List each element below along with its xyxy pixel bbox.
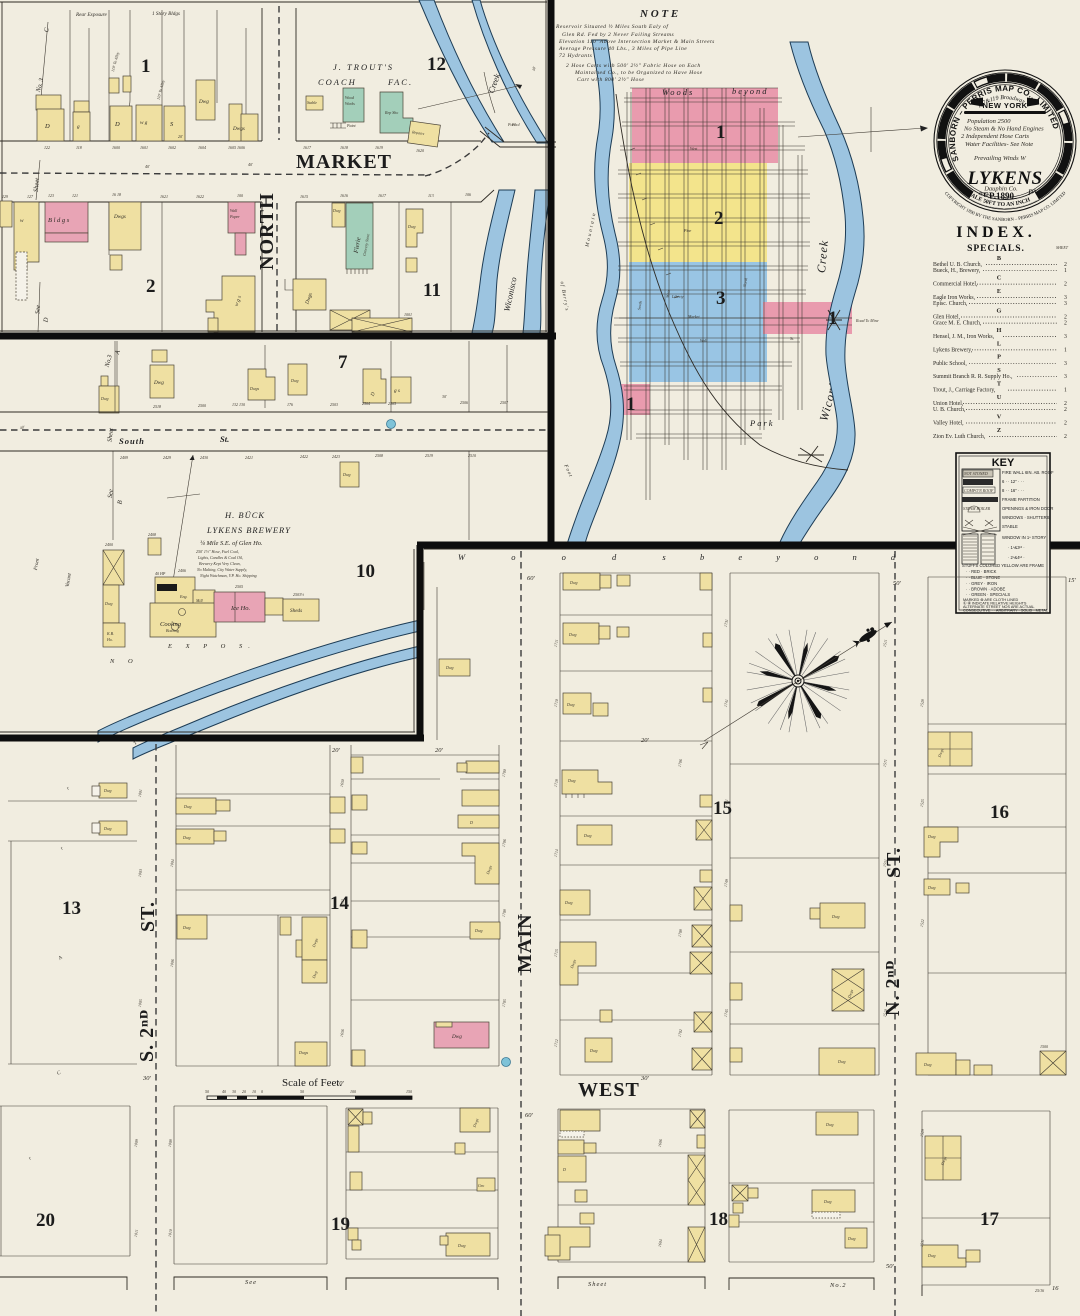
svg-text:B l d g s: B l d g s [48, 217, 70, 224]
svg-text:106: 106 [465, 192, 471, 197]
svg-text:S: S [997, 367, 1001, 374]
svg-text:10: 10 [252, 1089, 256, 1094]
svg-text:1: 1 [1064, 388, 1067, 394]
svg-text:NEW YORK: NEW YORK [982, 101, 1027, 110]
svg-text:St.: St. [220, 434, 229, 444]
svg-text:16 18: 16 18 [112, 192, 121, 197]
svg-text:Mill: Mill [195, 598, 204, 603]
svg-text:H: H [997, 327, 1002, 334]
svg-text:Dwg: Dwg [457, 1243, 466, 1248]
svg-text:Zion Ev. Luth Church,: Zion Ev. Luth Church, [933, 434, 986, 440]
svg-text:Grace M. E. Church,: Grace M. E. Church, [933, 321, 982, 327]
svg-text:2408: 2408 [148, 532, 156, 537]
svg-text:SPECIALS.: SPECIALS. [967, 244, 1025, 254]
svg-text:2: 2 [1064, 401, 1067, 407]
svg-text:2423: 2423 [332, 454, 340, 459]
svg-text:MARKET: MARKET [296, 151, 392, 173]
svg-text:COACH: COACH [318, 77, 357, 87]
svg-text:· · BLUE · STO: · · BLUE · STONE [966, 575, 1000, 580]
svg-text:N O T E: N O T E [639, 8, 678, 20]
svg-text:Dwg: Dwg [103, 826, 112, 831]
svg-text:Dwg: Dwg [564, 900, 573, 905]
svg-text:40 HP: 40 HP [155, 571, 166, 576]
svg-text:Cart with 800' 2½" Hose: Cart with 800' 2½" Hose [577, 76, 644, 83]
svg-text:Paper: Paper [229, 214, 240, 219]
svg-text:w: w [20, 218, 24, 224]
svg-text:1: 1 [716, 122, 726, 143]
svg-text:Stable: Stable [307, 100, 317, 105]
svg-text:30': 30' [442, 394, 447, 399]
svg-text:WINDOWS · SHUTTERS: WINDOWS · SHUTTERS [1002, 515, 1050, 520]
svg-text:11: 11 [423, 280, 441, 301]
svg-text:Wall: Wall [700, 338, 708, 343]
svg-text:6 · · 12″ · · ·: 6 · · 12″ · · · [1002, 479, 1024, 484]
svg-text:¼ Mile S.E. of Glen Ho.: ¼ Mile S.E. of Glen Ho. [200, 540, 263, 547]
svg-text:2504: 2504 [362, 401, 370, 406]
svg-text:2 Independent Hose Carts: 2 Independent Hose Carts [961, 133, 1030, 140]
svg-text:Dwg: Dwg [290, 378, 299, 383]
svg-text:1615: 1615 [300, 194, 308, 199]
svg-text:Dwg: Dwg [823, 1199, 832, 1204]
svg-text:2: 2 [714, 208, 724, 229]
svg-text:1605 1606: 1605 1606 [228, 145, 245, 150]
svg-text:U. B. Church,: U. B. Church, [933, 407, 966, 413]
svg-text:Paint: Paint [346, 123, 357, 128]
svg-text:P: P [997, 354, 1001, 361]
svg-text:COMPO'N ROOF: COMPO'N ROOF [964, 488, 994, 493]
svg-text:N O: N O [109, 658, 139, 665]
svg-text:Dwg: Dwg [100, 396, 109, 401]
svg-text:Dwg: Dwg [103, 788, 112, 793]
svg-text:Z: Z [997, 427, 1001, 434]
svg-text:Dwg: Dwg [182, 925, 191, 930]
svg-text:Public School,: Public School, [933, 361, 967, 367]
svg-text:STUFFS COLORED YELLOW ARE FRAM: STUFFS COLORED YELLOW ARE FRAME [962, 563, 1044, 568]
svg-text:72 Hydrants: 72 Hydrants [559, 53, 592, 59]
svg-text:FIRE WALL 6IN. AB. ROOF: FIRE WALL 6IN. AB. ROOF [1002, 470, 1054, 475]
svg-text:2: 2 [1064, 282, 1067, 288]
svg-text:G: G [997, 307, 1002, 314]
svg-text:STABLE: STABLE [1002, 524, 1018, 529]
svg-text:150: 150 [406, 1089, 412, 1094]
svg-text:50': 50' [886, 1263, 895, 1270]
svg-text:Liberty: Liberty [671, 294, 684, 299]
svg-text:2: 2 [1064, 321, 1067, 327]
svg-text:Dwg: Dwg [445, 665, 454, 670]
svg-text:2400: 2400 [105, 542, 113, 547]
svg-text:Eagle Iron Works,: Eagle Iron Works, [933, 295, 976, 301]
svg-text:16: 16 [1052, 1285, 1059, 1292]
svg-text:· 1ⁿ&3ʳᵈ ·: · 1ⁿ&3ʳᵈ · [1008, 545, 1025, 550]
svg-text:WEST: WEST [578, 1079, 640, 1101]
svg-text:20': 20' [178, 134, 183, 139]
svg-text:30: 30 [232, 1089, 236, 1094]
svg-text:3: 3 [1064, 361, 1067, 367]
svg-text:1600: 1600 [112, 145, 120, 150]
svg-text:Elevation 110' Above Inters: Elevation 110' Above Intersection Market… [558, 39, 715, 45]
svg-text:3: 3 [1064, 334, 1067, 340]
svg-text:D: D [562, 1167, 566, 1172]
svg-text:20': 20' [332, 747, 341, 754]
svg-text:Trout, J., Carriage Factory,: Trout, J., Carriage Factory, [933, 388, 996, 394]
svg-text:20': 20' [641, 737, 650, 744]
svg-text:Dwg: Dwg [847, 1236, 856, 1241]
svg-text:25/16: 25/16 [1035, 1288, 1044, 1293]
svg-text:Dwg: Dwg [837, 1059, 846, 1064]
svg-text:D: D [44, 123, 50, 130]
svg-text:1: 1 [1064, 268, 1067, 274]
svg-text:Dwgs: Dwgs [249, 386, 260, 391]
svg-text:2: 2 [146, 276, 156, 297]
svg-text:1: 1 [626, 394, 636, 415]
svg-text:13: 13 [62, 898, 81, 919]
svg-text:D: D [43, 317, 50, 324]
svg-text:West: West [690, 146, 698, 151]
svg-text:2: 2 [1064, 315, 1067, 321]
svg-text:Dwg: Dwg [569, 580, 578, 585]
svg-text:· · GREEN · SPEC: · · GREEN · SPECIALS [966, 592, 1010, 597]
svg-text:Ho.: Ho. [106, 637, 113, 642]
svg-text:Rep Sho: Rep Sho [384, 110, 398, 115]
svg-text:60': 60' [525, 1112, 534, 1119]
svg-text:Pine: Pine [683, 228, 692, 233]
svg-text:OPENINGS & IRON DOOR: OPENINGS & IRON DOOR [1002, 506, 1053, 511]
svg-text:7: 7 [338, 352, 348, 373]
svg-text:20: 20 [36, 1210, 55, 1231]
svg-text:Bottling: Bottling [166, 628, 179, 633]
svg-text:D: D [114, 121, 120, 128]
svg-text:Maintained Co., to be Orga: Maintained Co., to be Organized to Have … [574, 70, 703, 76]
svg-text:Dwg: Dwg [567, 778, 576, 783]
svg-text:1618: 1618 [340, 145, 348, 150]
svg-text:2507: 2507 [500, 400, 509, 405]
svg-text:2503½: 2503½ [293, 592, 304, 597]
svg-text:· · RED · BRI: · · RED · BRICK [966, 569, 997, 574]
svg-text:Dwg: Dwg [104, 601, 113, 606]
svg-text:Dwg: Dwg [342, 472, 351, 477]
svg-text:100: 100 [237, 193, 243, 198]
svg-text:g: g [77, 124, 80, 130]
svg-text:Prevailing Winds W: Prevailing Winds W [973, 155, 1026, 162]
svg-text:40: 40 [222, 1089, 226, 1094]
svg-text:Pool: Pool [507, 122, 516, 127]
svg-text:129: 129 [2, 194, 8, 199]
svg-text:2: 2 [1064, 421, 1067, 427]
svg-text:Woods: Woods [662, 87, 694, 97]
svg-text:Sheet: Sheet [588, 1281, 607, 1288]
svg-text:Creek: Creek [814, 239, 831, 273]
svg-text:113: 113 [428, 193, 434, 198]
svg-text:1500: 1500 [1040, 1044, 1048, 1049]
svg-text:SHEET: SHEET [1056, 245, 1069, 250]
svg-text:12: 12 [427, 54, 446, 75]
svg-text:Reservoir Situated ½ Miles: Reservoir Situated ½ Miles South Ealy of [555, 23, 669, 30]
svg-text:1619: 1619 [375, 145, 383, 150]
svg-text:Average Pressure 40 Lbs.,: Average Pressure 40 Lbs., 3 Miles of Pip… [558, 45, 687, 52]
svg-text:Population 2500: Population 2500 [966, 118, 1011, 125]
svg-text:Dwgs: Dwgs [232, 126, 245, 132]
svg-text:L: L [997, 340, 1001, 347]
svg-text:1617: 1617 [378, 193, 387, 198]
svg-text:No Steam & No Hand Engines: No Steam & No Hand Engines [963, 126, 1044, 133]
svg-text:50: 50 [300, 1089, 304, 1094]
svg-text:K.B.: K.B. [106, 631, 114, 636]
svg-text:Dwg: Dwg [927, 1253, 936, 1258]
svg-text:Park: Park [749, 418, 775, 428]
svg-text:Sheds: Sheds [290, 608, 302, 614]
svg-text:Dwg: Dwg [153, 380, 164, 386]
svg-text:Dwg: Dwg [825, 1122, 834, 1127]
svg-text:1602: 1602 [168, 145, 176, 150]
svg-text:· · BROWN · ADO: · · BROWN · ADOBE [966, 587, 1006, 592]
svg-text:See: See [107, 489, 115, 499]
svg-text:See: See [34, 305, 42, 315]
svg-text:NORTH: NORTH [256, 192, 278, 270]
svg-text:2 Hose Carts with 500' 2½": 2 Hose Carts with 500' 2½" Fabric Hose o… [566, 62, 701, 69]
svg-text:1: 1 [1064, 347, 1067, 353]
svg-text:122: 122 [44, 145, 50, 150]
svg-text:Road To Mine: Road To Mine [855, 318, 879, 323]
svg-text:20': 20' [435, 747, 444, 754]
svg-text:w g: w g [140, 120, 148, 126]
svg-text:Dwg: Dwg [198, 99, 209, 105]
svg-text:Gro: Gro [478, 1183, 484, 1188]
svg-text:15': 15' [1068, 577, 1077, 584]
svg-text:g s: g s [394, 388, 400, 394]
svg-text:121: 121 [72, 193, 78, 198]
svg-text:3: 3 [1064, 295, 1067, 301]
svg-text:0: 0 [261, 1089, 263, 1094]
svg-text:2505: 2505 [388, 401, 396, 406]
svg-text:Water Facilities- See Note: Water Facilities- See Note [965, 141, 1033, 148]
svg-text:· · GREY · IRO: · · GREY · IRON [966, 581, 997, 586]
svg-text:Eng.: Eng. [179, 594, 187, 599]
svg-text:1001: 1001 [404, 312, 412, 317]
svg-text:U: U [997, 394, 1002, 401]
svg-text:LYKENS BREWERY: LYKENS BREWERY [206, 525, 291, 535]
svg-text:Summit Branch R. R. Supply Ho.: Summit Branch R. R. Supply Ho., [933, 374, 1013, 380]
svg-text:2: 2 [1064, 434, 1067, 440]
svg-text:E: E [997, 288, 1001, 295]
svg-text:Dwg: Dwg [407, 224, 416, 229]
svg-text:Dwg: Dwg [568, 632, 577, 637]
svg-text:Glen Rd. Fed by 2 Never F: Glen Rd. Fed by 2 Never Failing Streams [562, 32, 674, 38]
svg-text:KEY: KEY [992, 457, 1015, 469]
svg-text:8 · · 16″ · · ·: 8 · · 16″ · · · [1002, 488, 1024, 493]
svg-text:Bueck, H., Brewery,: Bueck, H., Brewery, [933, 268, 981, 274]
svg-text:Dwg: Dwg [474, 928, 483, 933]
svg-text:3: 3 [1064, 301, 1067, 307]
svg-text:100: 100 [350, 1089, 356, 1094]
svg-text:2421: 2421 [245, 455, 253, 460]
svg-text:1604: 1604 [198, 145, 206, 150]
svg-text:Glen Hotel,: Glen Hotel, [933, 315, 961, 321]
svg-text:WINDOW IN 1ⁿ STORY: WINDOW IN 1ⁿ STORY [1002, 535, 1046, 540]
svg-text:C: C [997, 275, 1002, 282]
svg-text:1: 1 [828, 308, 838, 329]
svg-text:Bethel U. B. Church,: Bethel U. B. Church, [933, 262, 982, 268]
svg-text:2500: 2500 [198, 403, 206, 408]
svg-text:123: 123 [48, 193, 54, 198]
svg-text:40': 40' [145, 164, 150, 169]
svg-text:Wall: Wall [230, 208, 238, 213]
svg-text:60': 60' [527, 575, 536, 582]
svg-text:Dwg: Dwg [927, 834, 936, 839]
svg-text:1621: 1621 [160, 194, 168, 199]
svg-text:2429: 2429 [163, 455, 171, 460]
svg-text:E X P O S.: E X P O S. [167, 643, 256, 650]
svg-text:CONSECUTIVE · · ARBITRARY · SO: CONSECUTIVE · · ARBITRARY · SOLID · META… [963, 609, 1048, 613]
svg-text:50': 50' [893, 580, 902, 587]
svg-text:176: 176 [287, 402, 293, 407]
svg-text:MAIN: MAIN [514, 913, 536, 973]
svg-text:Dwg: Dwg [566, 702, 575, 707]
svg-text:15: 15 [713, 798, 732, 819]
svg-text:2503: 2503 [330, 402, 338, 407]
svg-text:1620: 1620 [416, 148, 424, 153]
svg-text:Rear Exposure: Rear Exposure [75, 12, 107, 18]
svg-text:132 130: 132 130 [232, 402, 245, 407]
svg-text:40': 40' [248, 162, 253, 167]
svg-text:Dwgs: Dwgs [298, 1050, 309, 1055]
svg-text:Dwg: Dwg [332, 208, 341, 213]
svg-text:Dwg: Dwg [183, 804, 192, 809]
svg-text:1616: 1616 [340, 193, 348, 198]
svg-text:N. 2ⁿᴰ: N. 2ⁿᴰ [882, 960, 904, 1016]
svg-text:D: D [469, 820, 473, 825]
svg-text:50: 50 [205, 1089, 209, 1094]
svg-text:See: See [245, 1279, 257, 1286]
svg-text:FAC.: FAC. [387, 77, 413, 87]
svg-text:Wood: Wood [345, 95, 355, 100]
svg-text:Scale of Feet.: Scale of Feet. [282, 1077, 342, 1089]
svg-text:S. 2ⁿᴰ: S. 2ⁿᴰ [136, 1009, 158, 1062]
svg-text:2505: 2505 [235, 584, 243, 589]
svg-text:Cooling: Cooling [160, 621, 182, 628]
svg-text:NOT STONED: NOT STONED [963, 471, 988, 476]
svg-text:b e y o n d: b e y o n d [700, 552, 911, 562]
svg-text:16: 16 [990, 802, 1009, 823]
svg-text:No.2: No.2 [829, 1282, 846, 1289]
svg-text:South: South [119, 436, 145, 446]
svg-text:18: 18 [709, 1209, 728, 1230]
svg-text:Hensel, J. M., Iron Works,: Hensel, J. M., Iron Works, [933, 334, 995, 340]
svg-text:2422: 2422 [300, 454, 308, 459]
svg-text:19: 19 [331, 1214, 350, 1235]
svg-text:beyond: beyond [732, 86, 769, 96]
svg-text:Ice Ho.: Ice Ho. [230, 605, 251, 612]
svg-text:Market: Market [687, 314, 700, 319]
svg-text:2508: 2508 [375, 453, 383, 458]
svg-text:2430: 2430 [200, 455, 208, 460]
svg-text:Dwg: Dwg [831, 914, 840, 919]
svg-text:W o o d s: W o o d s [458, 552, 688, 562]
svg-text:40': 40' [531, 66, 537, 72]
svg-text:Dwg: Dwg [182, 835, 191, 840]
svg-text:118: 118 [76, 145, 82, 150]
svg-text:1622: 1622 [196, 194, 204, 199]
svg-text:2518: 2518 [153, 404, 161, 409]
svg-text:ST.: ST. [137, 901, 159, 932]
svg-text:2506: 2506 [460, 400, 468, 405]
svg-text:30': 30' [640, 1075, 650, 1082]
svg-text:St.: St. [790, 336, 794, 341]
svg-text:INDEX.: INDEX. [956, 224, 1036, 241]
svg-text:3: 3 [716, 288, 726, 309]
svg-text:20: 20 [242, 1089, 246, 1094]
svg-text:Valley Hotel,: Valley Hotel, [933, 421, 964, 427]
svg-text:2409: 2409 [120, 455, 128, 460]
svg-text:2510: 2510 [468, 453, 476, 458]
svg-text:2: 2 [1064, 407, 1067, 413]
svg-text:Episc. Church,: Episc. Church, [933, 301, 968, 307]
svg-text:Dwg: Dwg [583, 833, 592, 838]
svg-text:V: V [997, 413, 1002, 420]
svg-text:Dwg: Dwg [927, 885, 936, 890]
svg-text:2519: 2519 [425, 453, 433, 458]
svg-text:Lykens Brewery,: Lykens Brewery, [933, 347, 973, 353]
svg-text:17: 17 [980, 1209, 1000, 1230]
svg-text:2406: 2406 [178, 568, 186, 573]
svg-text:· 2ⁿ&4ᵗᵈ ·: · 2ⁿ&4ᵗᵈ · [1008, 555, 1025, 560]
svg-text:3: 3 [1064, 374, 1067, 380]
svg-text:Union Hotel,: Union Hotel, [933, 401, 964, 407]
svg-text:1617: 1617 [303, 145, 312, 150]
svg-text:H. BÜCK: H. BÜCK [224, 510, 265, 520]
svg-text:30': 30' [142, 1075, 152, 1082]
svg-text:Commercial Hotel,: Commercial Hotel, [933, 282, 978, 288]
svg-text:Dwgs: Dwgs [113, 214, 126, 220]
svg-text:J. TROUT'S: J. TROUT'S [333, 62, 394, 72]
svg-text:FRAME PARTITION: FRAME PARTITION [1002, 497, 1040, 502]
svg-text:Dwg: Dwg [923, 1062, 932, 1067]
svg-text:1 Story Bldgs: 1 Story Bldgs [152, 11, 180, 17]
svg-text:10: 10 [356, 561, 375, 582]
svg-text:Dwg: Dwg [451, 1034, 462, 1040]
svg-text:Dwg: Dwg [589, 1048, 598, 1053]
svg-text:Works: Works [345, 101, 355, 106]
svg-text:1601: 1601 [140, 145, 148, 150]
svg-text:2: 2 [1064, 262, 1067, 268]
svg-text:1: 1 [141, 56, 151, 77]
svg-text:127: 127 [27, 194, 34, 199]
